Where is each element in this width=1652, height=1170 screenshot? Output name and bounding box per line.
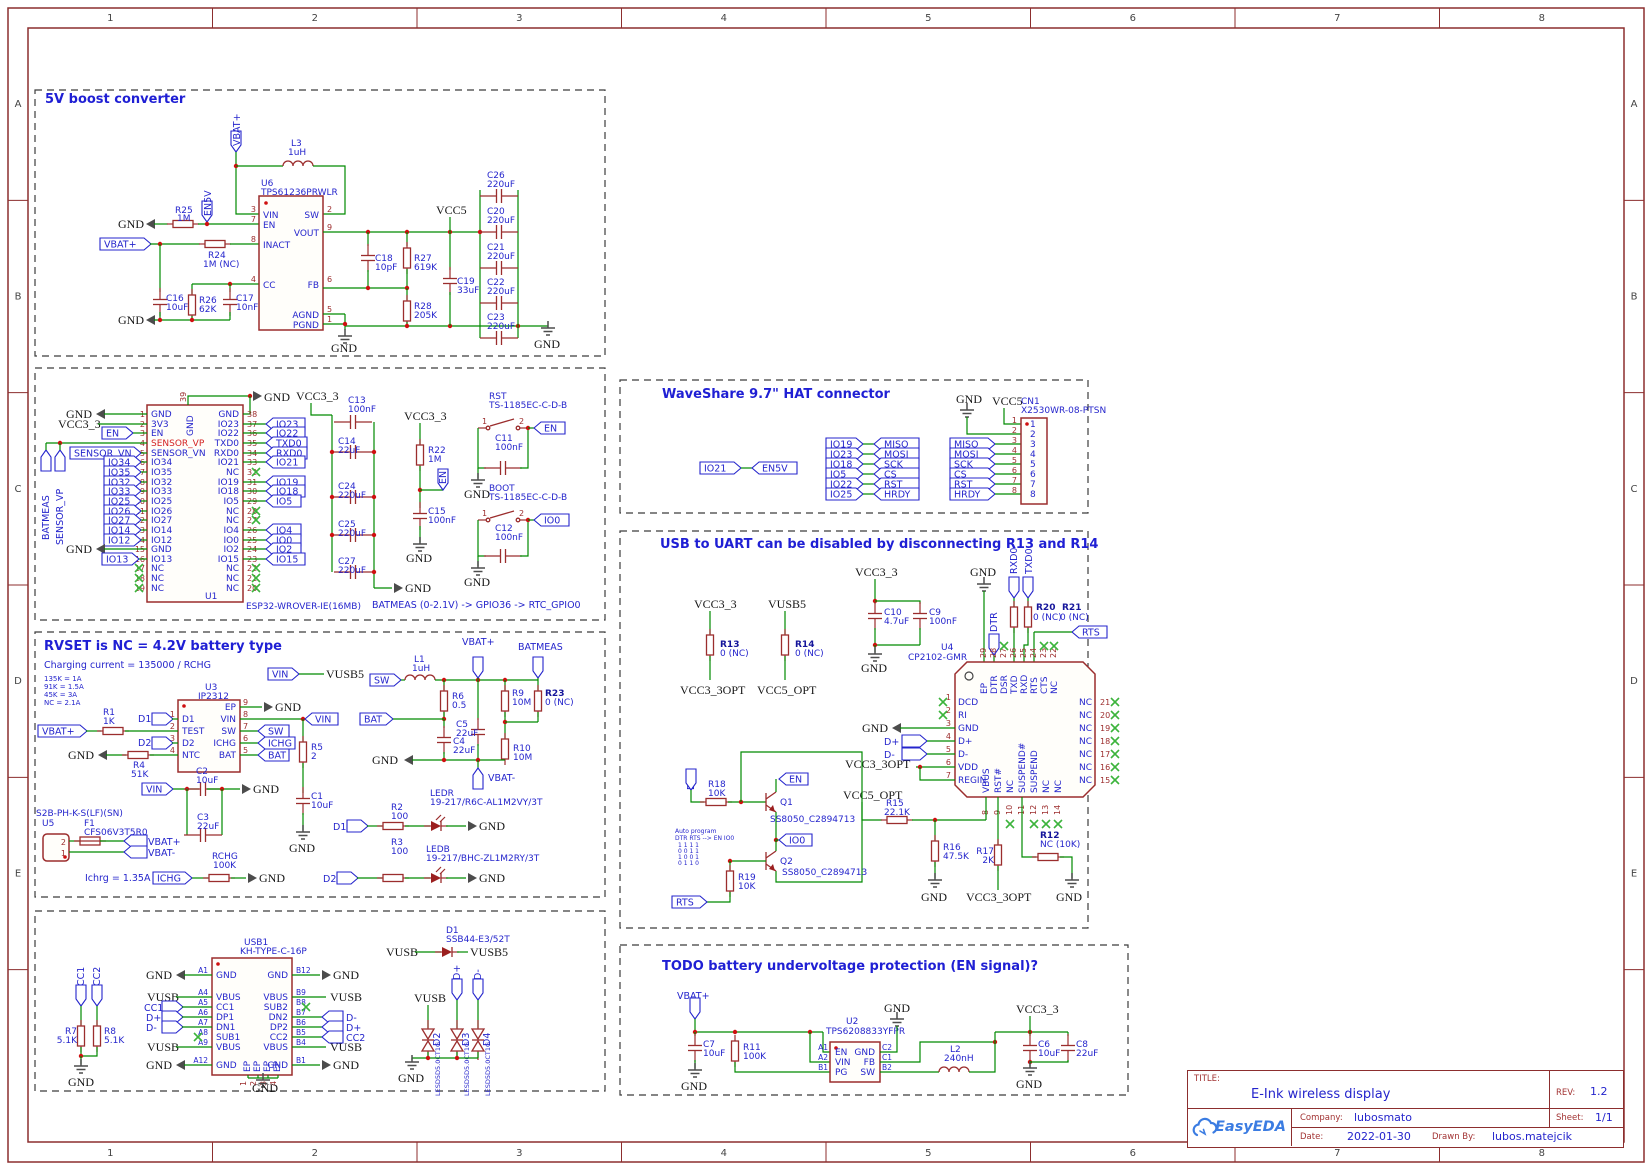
pin-number: 4 xyxy=(1012,446,1017,455)
port-flag xyxy=(92,985,102,1006)
pin-name: VIN xyxy=(220,715,236,725)
ref-label: 100nF xyxy=(929,617,957,627)
port-flag xyxy=(41,450,51,471)
wire xyxy=(311,403,332,415)
pin-number: 2 xyxy=(327,205,332,214)
pin-name: ICHG xyxy=(213,739,236,749)
pin-name: CTS xyxy=(1040,676,1050,694)
section-title: WaveShare 9.7" HAT connector xyxy=(662,387,891,402)
resistor xyxy=(732,1041,739,1061)
pin-name: 1 xyxy=(1030,420,1036,430)
pin-number: 7 xyxy=(1012,476,1017,485)
pin-number: 4 xyxy=(251,275,256,284)
resistor xyxy=(383,875,403,882)
port-label: VBAT+ xyxy=(462,637,495,648)
port-flag xyxy=(55,450,65,471)
pin-name: NC xyxy=(1079,737,1092,747)
drawn-by-value: lubos.matejcik xyxy=(1492,1130,1572,1143)
led-arrow xyxy=(440,869,445,874)
junction xyxy=(205,222,209,226)
net-label: GND xyxy=(118,217,144,231)
ref-label: 100K xyxy=(213,861,237,871)
switch xyxy=(516,426,520,430)
pin-name: RST# xyxy=(994,768,1004,793)
pin-number: B1 xyxy=(818,1063,828,1072)
pin-name: INACT xyxy=(263,241,291,251)
port-label: RTS xyxy=(1082,628,1100,639)
port-label: VBAT+ xyxy=(104,240,137,251)
ref-label: 22.1K xyxy=(884,808,911,818)
pin-number: 1 xyxy=(1012,416,1017,425)
junction xyxy=(372,495,376,499)
ref-label: 22uF xyxy=(1076,1049,1098,1059)
port-label: VBAT+ xyxy=(42,727,75,738)
ref-label: SS8050_C2894713 xyxy=(782,868,867,878)
pin-name: GND xyxy=(216,971,237,981)
pin-name: DTR xyxy=(990,675,1000,694)
ref-label: 240nH xyxy=(944,1054,974,1064)
net-label: GND xyxy=(921,890,947,904)
pin-name: TXD xyxy=(1010,675,1020,695)
ref-label: 10M xyxy=(512,698,531,708)
net-label: VCC3_3OPT xyxy=(680,683,746,697)
resistor xyxy=(383,823,403,830)
resistor xyxy=(78,1026,85,1046)
pin-number: 21 xyxy=(1100,698,1110,707)
pin-name: NC xyxy=(1079,750,1092,760)
net-label: GND xyxy=(1016,1077,1042,1091)
net-label: GND xyxy=(118,313,144,327)
led-arrow xyxy=(436,867,441,872)
pin-name: VBUS xyxy=(216,993,241,1003)
ref-label: CP2102-GMR xyxy=(908,653,967,663)
ref-label: 10uF xyxy=(1038,1049,1060,1059)
pin-name: NC xyxy=(1079,698,1092,708)
ref-label: NC (10K) xyxy=(1040,840,1080,850)
inductor xyxy=(283,161,313,166)
pin-name: IO34 xyxy=(151,458,172,468)
net-label: GND xyxy=(681,1079,707,1093)
label: 8 xyxy=(1539,1148,1545,1159)
ref-label: 4.7uF xyxy=(884,617,909,627)
pin-name: IO22 xyxy=(218,429,239,439)
label: 7 xyxy=(1334,1148,1340,1159)
ref-label: Q2 xyxy=(780,857,793,867)
note-text: Auto program xyxy=(675,828,717,835)
pin-number: 5 xyxy=(243,746,248,755)
wire xyxy=(478,520,486,556)
pin-name: EP xyxy=(263,1060,273,1072)
pin-name: NC xyxy=(1042,780,1052,793)
pin-number: 3 xyxy=(946,719,951,728)
label: C xyxy=(15,484,22,495)
pin-number: 26 xyxy=(1009,648,1018,658)
net-label: VUSB5 xyxy=(470,945,508,959)
gnd-arrow xyxy=(394,583,403,593)
pin-name: SUB2 xyxy=(264,1003,288,1013)
pin-name: NC xyxy=(151,574,164,584)
ref-label: 1M (NC) xyxy=(203,260,239,270)
ref-label: 1M xyxy=(177,214,191,224)
port-label: IO0 xyxy=(789,836,805,847)
port-label: IO12 xyxy=(108,536,130,547)
pin-number: 6 xyxy=(1012,466,1017,475)
sheet-title: E-Ink wireless display xyxy=(1251,1087,1390,1102)
pin-name: D+ xyxy=(958,737,972,747)
pin-name: IO33 xyxy=(151,487,172,497)
gnd-arrow xyxy=(322,970,331,980)
note-text: LESD5D5.0CT1G xyxy=(434,1042,442,1096)
port-flag xyxy=(533,657,543,678)
net-label: VCC3_3 xyxy=(694,597,737,611)
label: 6 xyxy=(1130,13,1136,24)
label: 8 xyxy=(1539,13,1545,24)
pin-number: A12 xyxy=(193,1056,208,1065)
gnd-arrow xyxy=(253,391,262,401)
wire xyxy=(691,790,704,802)
ref-label: SS8050_C2894713 xyxy=(770,815,855,825)
port-label: D1 xyxy=(138,714,151,725)
net-label: VUSB xyxy=(386,945,418,959)
ref-label: 220uF xyxy=(487,180,515,190)
wire xyxy=(478,462,486,468)
resistor xyxy=(706,799,726,806)
port-label: IO13 xyxy=(106,555,128,566)
sheet-value: 1/1 xyxy=(1595,1111,1613,1124)
pin-number: A2 xyxy=(818,1053,828,1062)
pin-name: PG xyxy=(835,1068,847,1078)
junction xyxy=(343,322,347,326)
junction xyxy=(455,1056,459,1060)
ref-label: 19-217/BHC-ZL1M2RY/3T xyxy=(426,854,540,864)
led-arrow xyxy=(440,817,445,822)
pin-name: NC xyxy=(151,564,164,574)
easyeda-logo-icon xyxy=(1191,1116,1217,1140)
resistor xyxy=(1025,607,1032,627)
junction xyxy=(426,1056,430,1060)
pin-name: DP1 xyxy=(216,1013,234,1023)
ref-label: X2530WR-08-PTSN xyxy=(1021,406,1106,416)
pin-name: IO5 xyxy=(224,497,239,507)
port-label: BAT xyxy=(364,715,382,726)
net-label: GND xyxy=(398,1071,424,1085)
pin-name: SUSPEND# xyxy=(1018,743,1028,793)
ref-label: 220uF xyxy=(487,252,515,262)
port-label: D2 xyxy=(323,874,336,885)
rev-label: REV: xyxy=(1556,1088,1575,1098)
pin-number: 2 xyxy=(946,706,951,715)
resistor xyxy=(782,635,789,655)
pin-number: A6 xyxy=(198,1008,208,1017)
gnd-arrow xyxy=(176,1060,185,1070)
resistor xyxy=(103,728,123,735)
ref-label: IP2312 xyxy=(198,692,229,702)
company-cell: Company: lubosmato xyxy=(1292,1109,1549,1128)
pin-number: 14 xyxy=(1053,805,1062,815)
pin-name: VBUS xyxy=(263,993,288,1003)
pin-name: NC xyxy=(1079,763,1092,773)
port-label: HRDY xyxy=(954,490,981,501)
label: 3 xyxy=(516,1148,522,1159)
pin-name: RXD xyxy=(1020,675,1030,694)
pin-name: DSR xyxy=(1000,675,1010,694)
label: 2 xyxy=(312,13,318,24)
diode xyxy=(442,947,452,957)
pin-number: 1 xyxy=(482,509,487,518)
label: 1 xyxy=(107,13,113,24)
pin-name: SUSPEND xyxy=(1030,750,1040,793)
net-label: GND xyxy=(372,753,398,767)
title-block: TITLE: E-Ink wireless display REV: 1.2 E… xyxy=(1187,1070,1624,1148)
pin-number: 24 xyxy=(1029,648,1038,658)
ref-label: Q1 xyxy=(780,798,793,808)
pin-name: VBUS xyxy=(216,1043,241,1053)
date-cell: Date: 2022-01-30 Drawn By: lubos.matejci… xyxy=(1292,1128,1623,1146)
ref-label: 220uF xyxy=(338,529,366,539)
pin-number: B12 xyxy=(296,966,311,975)
ref-label: TPS6208833YFPR xyxy=(825,1027,905,1037)
port-label: EN xyxy=(106,429,119,440)
net-label: VCC3_3 xyxy=(58,417,101,431)
pin-name: RI xyxy=(958,711,967,721)
ref-label: 2K xyxy=(982,856,995,866)
pin-name: 2 xyxy=(1030,430,1036,440)
port-flag xyxy=(124,846,147,858)
ref-label: 10K xyxy=(708,789,726,799)
ref-label: 220uF xyxy=(338,566,366,576)
pin-name: PGND xyxy=(293,321,319,331)
sheet-label: Sheet: xyxy=(1556,1113,1583,1123)
port-label: IO21 xyxy=(276,458,298,469)
note-text: BATMEAS (0-2.1V) -> GPIO36 -> RTC_GPIO0 xyxy=(372,600,581,611)
note-text: 91K = 1.5A xyxy=(44,683,84,691)
gnd-arrow xyxy=(468,873,477,883)
ref-label: 100nF xyxy=(495,533,523,543)
port-flag xyxy=(452,979,462,1000)
pin-number: 8 xyxy=(1012,486,1017,495)
ref-label: 62K xyxy=(199,305,217,315)
net-label: VCC5 xyxy=(436,203,467,217)
pin-number: B4 xyxy=(296,1038,306,1047)
ref-label: SSB44-E3/52T xyxy=(446,935,510,945)
ref-label: 1uH xyxy=(288,148,306,158)
port-label: EN5V xyxy=(203,190,214,216)
gnd-arrow xyxy=(264,702,273,712)
pin-number: 18 xyxy=(1100,737,1110,746)
transistor xyxy=(766,792,776,799)
note-text: DTR RTS --> EN IO0 xyxy=(675,835,734,842)
port-label: IO5 xyxy=(276,497,292,508)
pin-name: DN2 xyxy=(269,1013,288,1023)
ref-label: 22uF xyxy=(456,729,478,739)
pin-name: NC xyxy=(226,564,239,574)
pin-number: 1 xyxy=(482,417,487,426)
ref-label: 22uF xyxy=(338,446,360,456)
pin-name: EN xyxy=(263,221,275,231)
pin1-marker xyxy=(1025,422,1029,426)
label: A xyxy=(1631,99,1638,110)
pin-name: GND xyxy=(267,971,288,981)
pin1-marker xyxy=(216,962,220,966)
pin-number: 2 xyxy=(61,838,66,847)
junction xyxy=(330,450,334,454)
pin-name: CC xyxy=(263,281,276,291)
resistor xyxy=(205,241,225,248)
pin-number: 3 xyxy=(1012,436,1017,445)
net-label: GND xyxy=(68,748,94,762)
ref-label: 100K xyxy=(743,1052,767,1062)
ref-label: 0 (NC) xyxy=(720,649,749,659)
net-label: GND xyxy=(146,968,172,982)
pin-number: 1 xyxy=(239,1081,248,1086)
net-label: GND xyxy=(333,968,359,982)
ref-label: 22uF xyxy=(453,746,475,756)
port-label: D+ xyxy=(884,737,899,748)
note-text: 135K = 1A xyxy=(44,675,82,683)
net-label: GND xyxy=(331,341,357,355)
rev-cell: REV: 1.2 xyxy=(1549,1071,1623,1109)
pin-name: NC xyxy=(1054,780,1064,793)
switch xyxy=(486,426,490,430)
ref-label: 220uF xyxy=(487,287,515,297)
pin-name: VDD xyxy=(958,763,978,773)
label: 4 xyxy=(721,1148,727,1159)
label: 6 xyxy=(1130,1148,1136,1159)
junction xyxy=(330,533,334,537)
pin-name: SW xyxy=(860,1068,875,1078)
pin-number: B1 xyxy=(296,1056,306,1065)
net-label: VCC3_3 xyxy=(855,565,898,579)
net-label: GND xyxy=(1056,890,1082,904)
pin-name: GND xyxy=(151,410,172,420)
net-label: VUSB xyxy=(147,1040,179,1054)
ref-label: 205K xyxy=(414,311,438,321)
label: 1 xyxy=(107,1148,113,1159)
pin-name: DN1 xyxy=(216,1023,235,1033)
pin-name: D- xyxy=(958,750,968,760)
pin-name: EP xyxy=(253,1060,263,1072)
pin-name: SW xyxy=(304,211,319,221)
pin-name: NC xyxy=(226,574,239,584)
port-label: D2 xyxy=(138,738,151,749)
ref-label: 0 (NC) xyxy=(545,698,574,708)
pin-number: A7 xyxy=(198,1018,208,1027)
pin-number: 25 xyxy=(1019,648,1028,658)
pin-name: IO14 xyxy=(151,526,172,536)
pin-name: NC xyxy=(226,584,239,594)
inductor xyxy=(939,1067,969,1072)
resistor xyxy=(932,841,939,861)
led xyxy=(431,873,441,883)
pin-name: EP xyxy=(225,703,237,713)
port-flag xyxy=(162,1021,183,1033)
net-label: GND xyxy=(259,871,285,885)
port-label: IO25 xyxy=(830,490,852,501)
pin-name: VOUT xyxy=(294,229,320,239)
pin-name: D2 xyxy=(182,739,195,749)
label: 2 xyxy=(312,1148,318,1159)
pin-number: 2 xyxy=(519,417,524,426)
pin-number: 12 xyxy=(1029,805,1038,815)
net-label: GND xyxy=(275,700,301,714)
ref-label: 100 xyxy=(391,847,408,857)
port-label: VIN xyxy=(272,670,288,681)
ref-label: 10uF xyxy=(196,776,218,786)
net-label: GND xyxy=(146,1058,172,1072)
label: 4 xyxy=(721,13,727,24)
company-label: Company: xyxy=(1300,1113,1343,1123)
pin-number: 9 xyxy=(327,223,332,232)
pin-number: 9 xyxy=(243,698,248,707)
gnd-arrow xyxy=(248,873,257,883)
label: 3 xyxy=(516,13,522,24)
ref-label: 10pF xyxy=(375,263,397,273)
ref-label: 100 xyxy=(391,812,408,822)
pin-number: C1 xyxy=(882,1053,892,1062)
pin-number: 7 xyxy=(946,771,951,780)
pin-number: 13 xyxy=(1041,805,1050,815)
resistor xyxy=(417,445,424,465)
pin-name: NC xyxy=(1050,681,1060,694)
ref-label: S2B-PH-K-S(LF)(SN) xyxy=(36,809,123,819)
junction xyxy=(372,570,376,574)
pin-number: 5 xyxy=(1012,456,1017,465)
net-label: VCC3_3 xyxy=(296,389,339,403)
net-label: GND xyxy=(956,392,982,406)
port-label: SENSOR_VP xyxy=(55,489,66,545)
pin-name: EN xyxy=(151,429,163,439)
gnd-arrow xyxy=(98,750,107,760)
note-text: 45K = 3A xyxy=(44,691,77,699)
date-value: 2022-01-30 xyxy=(1347,1130,1411,1143)
port-label: BATMEAS xyxy=(41,495,52,540)
net-label: GND xyxy=(406,551,432,565)
port-label: D1 xyxy=(333,822,346,833)
port-flag xyxy=(347,820,368,832)
section-title: 5V boost converter xyxy=(45,92,186,107)
pin-name: EP xyxy=(243,1060,253,1072)
pin-number: 3 xyxy=(251,205,256,214)
gnd-arrow xyxy=(176,970,185,980)
pin-number: A5 xyxy=(198,998,208,1007)
pin-number: 6 xyxy=(327,275,332,284)
resistor xyxy=(404,248,411,268)
pin-name: FB xyxy=(308,281,319,291)
pin-number: 8 xyxy=(243,710,248,719)
pin-name: GND xyxy=(854,1048,875,1058)
junction xyxy=(442,758,446,762)
net-label: GND xyxy=(464,487,490,501)
label: B xyxy=(15,292,22,303)
pin-number: 16 xyxy=(1100,763,1110,772)
pin-number: 2 xyxy=(1012,426,1017,435)
ref-label: U1 xyxy=(205,592,217,602)
pin-name: GND xyxy=(958,724,979,734)
pin-name: VIN xyxy=(835,1058,851,1068)
ref-label: R21 xyxy=(1062,603,1081,613)
net-label: GND xyxy=(68,1075,94,1089)
note-text: 0 1 1 0 xyxy=(678,860,699,867)
net-label: GND xyxy=(252,1081,278,1095)
resistor xyxy=(1011,607,1018,627)
net-label: GND xyxy=(253,782,279,796)
port-label: TXD0 xyxy=(1024,548,1035,575)
ref-label: 51K xyxy=(131,770,149,780)
logo-text: EasyEDA xyxy=(1215,1119,1286,1135)
ref-label: 1uH xyxy=(412,664,430,674)
pin-name: 4 xyxy=(1030,450,1036,460)
pin-name: EN xyxy=(835,1048,847,1058)
